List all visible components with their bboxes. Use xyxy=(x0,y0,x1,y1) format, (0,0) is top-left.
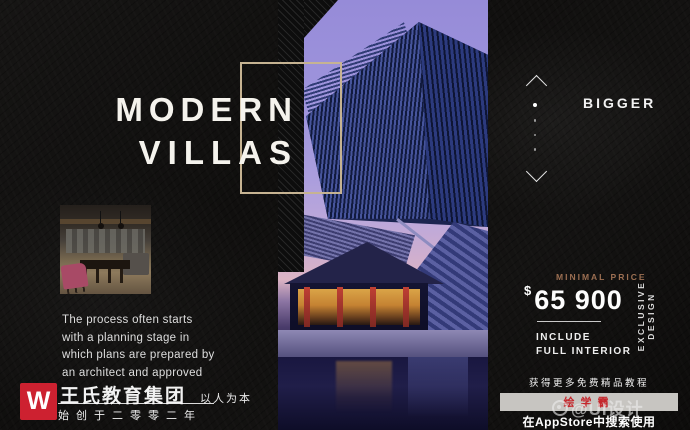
price-amount: $65 900 xyxy=(524,283,623,316)
title-line-villas: VILLAS xyxy=(90,131,298,174)
reflecting-pool xyxy=(278,357,488,430)
pendant-lamp xyxy=(118,223,124,229)
pendant-lamp xyxy=(98,223,104,229)
warm-reflection xyxy=(336,361,392,413)
curtained-window xyxy=(66,229,145,253)
amount-value: 65 900 xyxy=(534,285,623,315)
red-column xyxy=(304,287,310,327)
currency-symbol: $ xyxy=(524,283,532,298)
ceiling-beam xyxy=(60,219,151,224)
include-line2: FULL INTERIOR xyxy=(536,345,631,359)
pool-deck xyxy=(278,330,488,358)
promo-headline: 获得更多免费精品教程 xyxy=(498,375,680,389)
description-line: with a planning stage in xyxy=(62,330,215,348)
dot-active xyxy=(533,103,537,107)
price-divider xyxy=(537,321,601,322)
description-paragraph: The process often starts with a planning… xyxy=(62,312,215,382)
blue-reflection xyxy=(408,357,468,417)
title-line-modern: MODERN xyxy=(90,88,298,131)
exclusive-design-vertical-label: EXCLUSIVE DESIGN xyxy=(636,266,656,366)
dining-table xyxy=(80,260,130,269)
chevron-down-icon xyxy=(526,161,547,182)
weibo-watermark: @UI设计 xyxy=(552,395,644,420)
minimal-price-label: MINIMAL PRICE xyxy=(556,272,647,282)
lit-entrance xyxy=(290,283,428,333)
dot xyxy=(534,119,537,122)
red-column xyxy=(403,287,409,327)
dot xyxy=(534,148,537,151)
weibo-icon xyxy=(552,400,568,416)
red-column xyxy=(370,287,376,327)
red-column xyxy=(337,287,343,327)
warm-interior-glow xyxy=(298,289,420,325)
pagination-dots xyxy=(533,103,537,151)
pink-chair xyxy=(60,262,88,289)
brand-logo-letter: W xyxy=(27,387,51,416)
interior-thumbnail xyxy=(60,205,151,294)
brand-since: 始创于二零零二年 xyxy=(58,407,202,423)
watermark-text: @UI设计 xyxy=(571,395,644,420)
brand-divider xyxy=(58,403,214,404)
poster-title: MODERN VILLAS xyxy=(90,88,298,174)
brand-logo: W xyxy=(20,383,57,420)
description-line: an architect and approved xyxy=(62,365,215,383)
description-line: which plans are prepared by xyxy=(62,347,215,365)
dot xyxy=(534,134,537,137)
chevron-up-icon xyxy=(526,75,547,96)
include-line1: INCLUDE xyxy=(536,331,631,345)
bigger-label: BIGGER xyxy=(583,95,656,111)
description-line: The process often starts xyxy=(62,312,215,330)
include-note: INCLUDE FULL INTERIOR xyxy=(536,331,631,359)
modern-villas-poster: MODERN VILLAS The process often starts w… xyxy=(0,0,690,430)
